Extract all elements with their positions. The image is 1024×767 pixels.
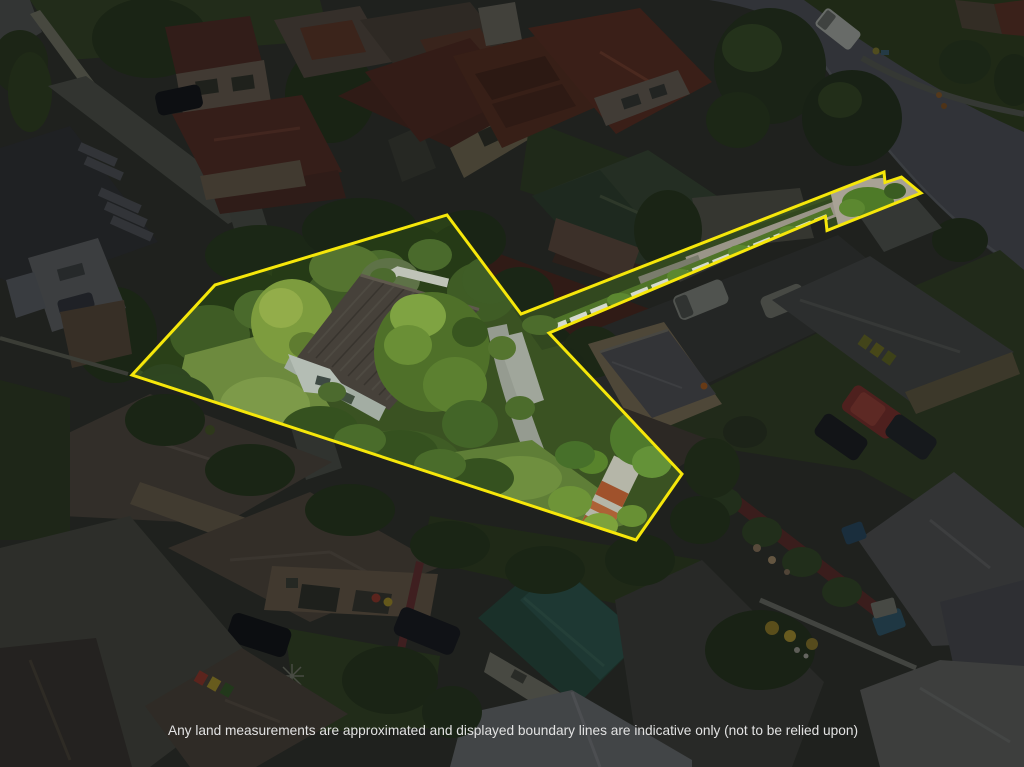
svg-text:Any land measurements are appr: Any land measurements are approximated a… [168, 723, 858, 738]
